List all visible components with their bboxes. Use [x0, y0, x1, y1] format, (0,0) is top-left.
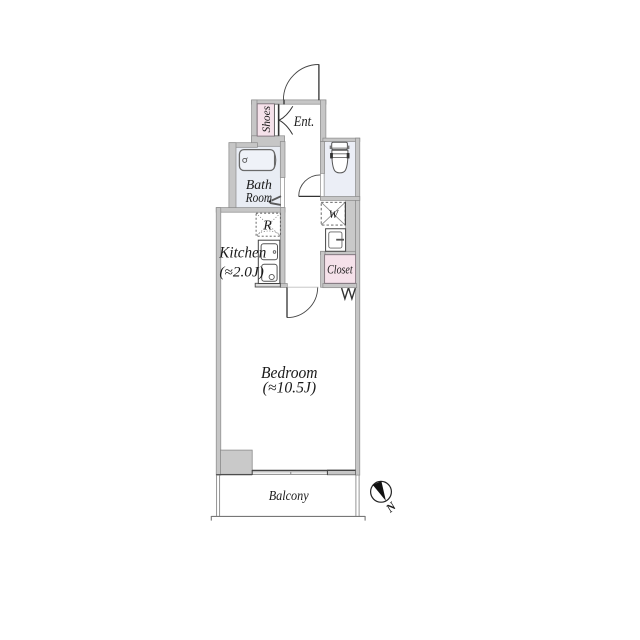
- svg-text:Ent.: Ent.: [293, 114, 314, 130]
- svg-text:Kitchen: Kitchen: [218, 243, 266, 261]
- svg-text:Closet: Closet: [327, 263, 353, 277]
- svg-text:W: W: [329, 207, 339, 221]
- svg-text:(≈10.5J): (≈10.5J): [263, 379, 317, 396]
- svg-text:R: R: [262, 218, 272, 233]
- svg-text:Balcony: Balcony: [269, 488, 309, 503]
- svg-text:(≈2.0J): (≈2.0J): [219, 265, 264, 281]
- svg-text:Shoes: Shoes: [261, 105, 273, 132]
- svg-text:Room: Room: [245, 190, 272, 205]
